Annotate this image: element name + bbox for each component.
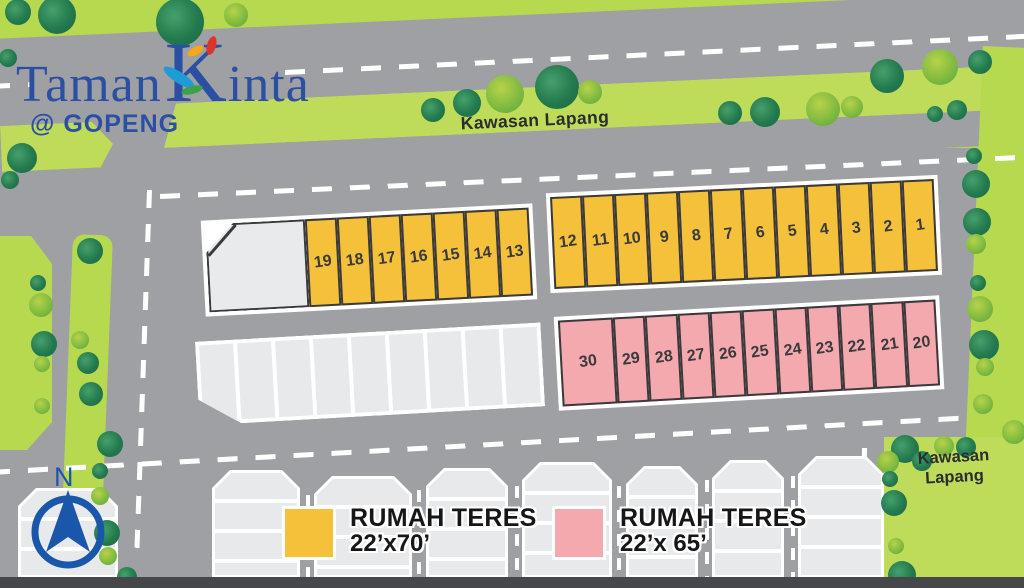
tree-icon [947,100,967,120]
corner-lot-unnumbered [205,219,309,312]
lot-number: 13 [505,242,525,262]
lot-unnumbered [313,337,351,415]
tree-icon [922,49,958,85]
logo-word-taman: Taman [16,55,162,114]
lot-number: 17 [377,249,397,269]
lot-25: 25 [742,309,779,397]
lot-9: 9 [646,191,682,284]
lot-10: 10 [614,193,650,286]
bottom-border-strip [0,577,1024,588]
tree-icon [870,59,904,93]
lot-number: 25 [750,342,770,362]
tree-icon [79,382,103,406]
lot-number: 9 [658,228,669,247]
compass: N [22,462,122,582]
tree-icon [5,0,31,25]
tree-icon [881,490,907,516]
lot-unnumbered [427,331,465,409]
lot-20: 20 [903,300,940,388]
lot-26: 26 [710,310,747,398]
lot-8: 8 [678,190,714,283]
tree-icon [973,394,993,414]
lot-15: 15 [433,211,470,301]
tree-icon [34,356,50,372]
lot-22: 22 [839,303,876,391]
lot-number: 24 [783,340,803,360]
lot-1: 1 [902,179,938,272]
house-block-fill [801,459,881,575]
lot-4: 4 [806,184,842,277]
lot-18: 18 [337,216,374,306]
tree-icon [750,97,780,127]
lot-unnumbered [275,339,313,417]
tree-icon [71,331,89,349]
tree-icon [97,431,123,457]
lot-number: 30 [578,352,598,372]
lot-6: 6 [742,187,778,280]
lot-number: 10 [622,229,642,249]
area-label-kawasan-lapang: Kawasan Lapang [885,444,1023,491]
lot-11: 11 [582,194,618,287]
lot-3: 3 [838,182,874,275]
lot-number: 21 [879,335,899,355]
lot-24: 24 [774,307,811,395]
lot-number: 27 [686,346,706,366]
lot-14: 14 [465,209,502,299]
tree-icon [966,148,982,164]
logo-letter-k: K [165,34,227,111]
lot-unnumbered [351,335,389,413]
lot-30: 30 [558,318,618,407]
tree-icon [970,275,986,291]
lot-unnumbered [465,329,503,407]
lot-number: 19 [313,252,333,272]
tree-icon [29,293,53,317]
tree-icon [927,106,943,122]
tree-icon [806,92,840,126]
lot-number: 3 [850,219,861,238]
legend-label-terrace70: RUMAH TERES 22’x70’ [350,505,537,556]
tree-icon [224,3,248,27]
legend-swatch-terrace70 [282,506,336,560]
lot-unnumbered [237,341,275,419]
lot-12: 12 [550,196,586,289]
lot-number: 1 [914,216,925,235]
lot-number: 23 [815,339,835,359]
lot-28: 28 [645,314,682,402]
tree-icon [77,238,103,264]
site-plan: 19181716151413 121110987654321 302928272… [0,0,1024,588]
lot-19: 19 [305,218,342,308]
tree-icon [34,398,50,414]
tree-icon [968,50,992,74]
tree-icon [966,234,986,254]
lot-27: 27 [677,312,714,400]
lot-number: 18 [345,251,365,271]
tree-icon [963,208,991,236]
tree-icon [77,352,99,374]
legend-label-terrace65: RUMAH TERES 22’x 65’ [620,505,807,556]
legend-swatch-terrace65 [552,506,606,560]
lot-5: 5 [774,185,810,278]
tree-icon [888,538,904,554]
lot-block-terrace70-right: 121110987654321 [546,175,942,293]
logo-word-inta: inta [228,55,310,114]
north-arrow-icon [22,488,114,580]
tree-icon [7,143,37,173]
lot-number: 2 [882,218,893,237]
lot-unnumbered [389,333,427,411]
lot-number: 12 [558,232,578,252]
logo-title: Taman K inta [16,34,310,114]
lot-number: 5 [786,222,797,241]
house-block [798,456,884,578]
lot-number: 14 [473,244,493,264]
lot-number: 15 [441,246,461,266]
lot-2: 2 [870,181,906,274]
lot-23: 23 [806,305,843,393]
tree-icon [962,170,990,198]
tree-icon [38,0,76,34]
lot-number: 28 [653,348,673,368]
lot-number: 7 [722,225,733,244]
tree-icon [841,96,863,118]
lot-number: 16 [409,247,429,267]
lot-29: 29 [613,316,650,404]
lot-16: 16 [401,213,438,303]
lot-number: 6 [754,224,765,243]
lot-unnumbered [503,327,541,405]
tree-icon [969,330,999,360]
lot-21: 21 [871,301,908,389]
lot-7: 7 [710,188,746,281]
lot-number: 4 [818,221,829,240]
tree-icon [578,80,602,104]
lot-block-terrace70-left: 19181716151413 [201,203,538,316]
tree-icon [535,65,579,109]
tree-icon [976,358,994,376]
tree-icon [30,275,46,291]
project-logo: Taman K inta @ GOPENG [16,34,310,139]
lot-number: 22 [847,337,867,357]
tree-icon [486,75,524,113]
lot-number: 29 [621,349,641,369]
tree-icon [31,331,57,357]
lot-number: 26 [718,344,738,364]
tree-icon [718,101,742,125]
tree-icon [1002,420,1024,444]
lot-13: 13 [497,208,534,298]
tree-icon [1,171,19,189]
tree-icon [967,296,993,322]
lot-17: 17 [369,214,406,304]
lot-number: 20 [912,333,932,353]
lot-number: 11 [591,231,610,251]
lot-number: 8 [690,227,701,246]
